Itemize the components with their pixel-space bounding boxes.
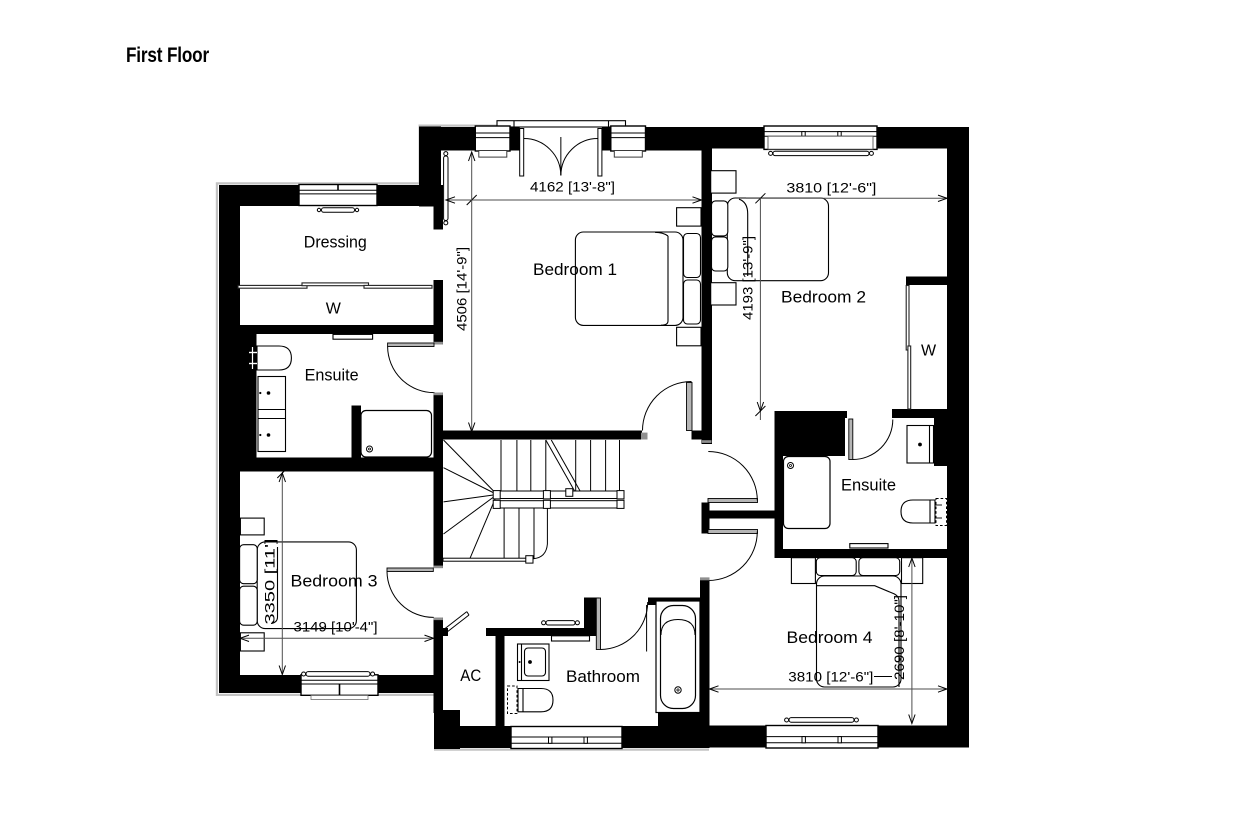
svg-text:3810 [12'-6"]: 3810 [12'-6"] [788,669,873,685]
svg-text:Ensuite: Ensuite [305,367,359,385]
svg-text:4162 [13'-8"]: 4162 [13'-8"] [530,179,615,195]
svg-text:Bedroom 4: Bedroom 4 [787,629,873,647]
svg-text:Bedroom 1: Bedroom 1 [533,261,617,279]
svg-text:4193 [13'-9"]: 4193 [13'-9"] [741,236,757,320]
svg-text:First Floor: First Floor [126,44,209,67]
svg-text:3149 [10'-4"]: 3149 [10'-4"] [294,619,378,635]
svg-text:Bedroom 3: Bedroom 3 [291,573,378,591]
svg-text:W: W [921,343,937,360]
svg-text:Dressing: Dressing [304,234,367,252]
svg-text:3810 [12'-6"]: 3810 [12'-6"] [786,180,876,196]
svg-text:AC: AC [460,667,481,685]
svg-text:4506 [14'-9"]: 4506 [14'-9"] [454,247,470,331]
svg-text:Bedroom 2: Bedroom 2 [781,289,866,307]
svg-text:W: W [326,301,342,318]
svg-text:Ensuite: Ensuite [841,476,896,494]
svg-text:3350 [11']: 3350 [11'] [262,539,278,625]
svg-text:Bathroom: Bathroom [566,668,640,686]
svg-text:2690 [8'-10"]: 2690 [8'-10"] [892,595,908,680]
